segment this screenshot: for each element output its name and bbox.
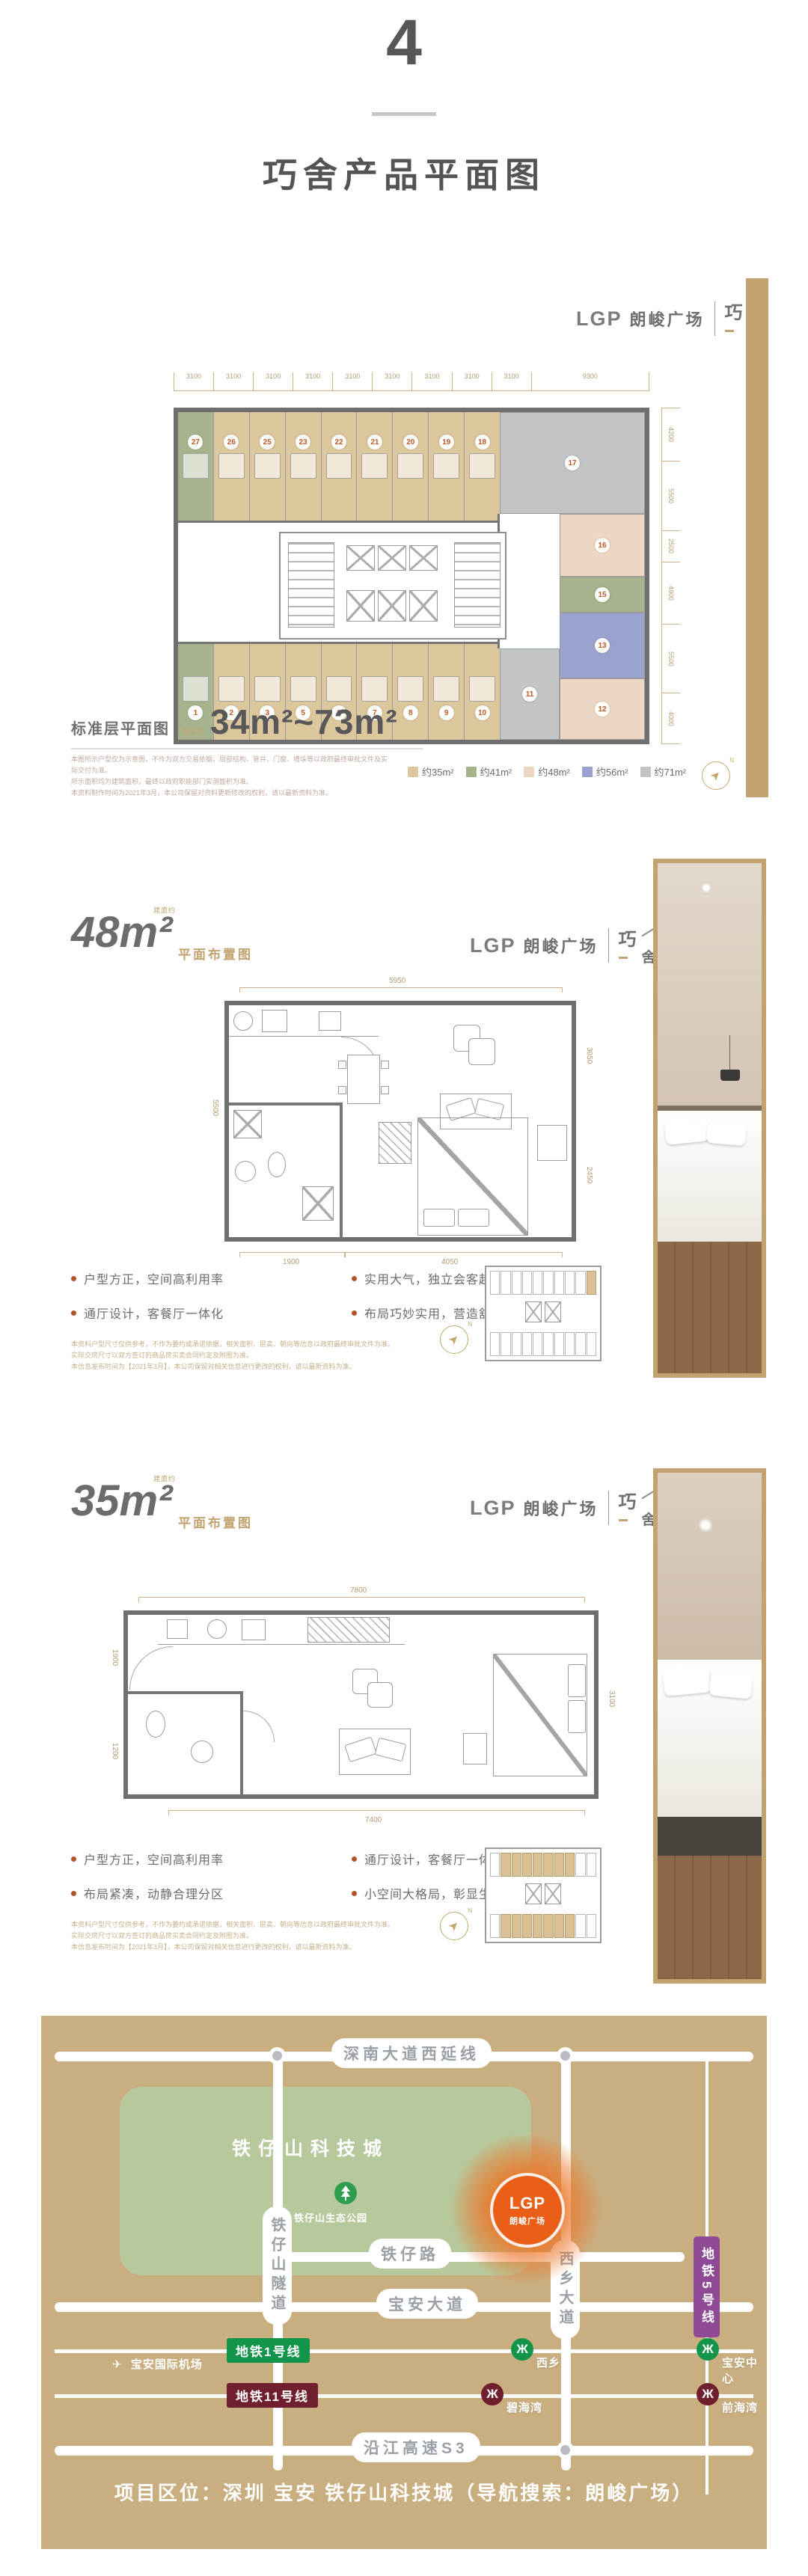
compass-icon: ➤ N [440,1325,468,1354]
unit48-disclaimer: 本资料户型尺寸仅供参考，不作为要约或承诺依据，相关面积、层高、朝向等信息以政府最… [71,1339,415,1373]
legend-swatch [524,767,534,777]
wall-lamp-glow [698,1518,713,1533]
unit35-area: 35m² [71,1479,172,1523]
bathroom-block [218,453,245,479]
brand-name: 朗峻广场 [630,307,705,331]
headboard [658,1105,762,1111]
brand-lockup: LGP 朗峻广场 巧 舍 [470,1488,658,1527]
dim-label: 5500 [662,461,680,530]
plan1-caption: 标准层平面图 建面约 34m²~73m² [71,702,398,742]
north-label: N [468,1907,472,1914]
elevator-icon [409,545,438,571]
dim-label: 3100 [332,372,372,390]
inner-wall [340,1103,343,1239]
locator-cell [533,1853,542,1877]
metro-station-name: 前海湾 [722,2399,758,2415]
sink-icon [319,1011,341,1031]
locator-cell [554,1853,564,1877]
tech-city-label: 铁仔山科技城 [232,2134,389,2161]
locator-cell [587,1914,596,1938]
qiaoshe-char1: 巧 [725,298,743,324]
dim-label: 3100 [607,1690,616,1707]
sink-icon [167,1619,188,1639]
unit-number: 19 [439,435,454,450]
feature-item: 户型方正，空间高利用率 [71,1841,352,1876]
locator-cell [554,1914,564,1938]
locator-cell [501,1271,510,1295]
feature-text: 布局紧凑，动静合理分区 [84,1884,224,1902]
floor-plan-48 [224,1001,576,1242]
locator-cell [490,1332,500,1356]
unit35-locator [485,1847,602,1943]
bullet-dot-icon [352,1891,357,1896]
locator-cell [554,1271,564,1295]
locator-cell [565,1332,575,1356]
pillow [708,1671,753,1699]
metro-station-icon: Ж [511,2338,533,2361]
dim-label: 3100 [452,372,492,390]
bathroom-block [183,453,209,479]
feature-item: 户型方正，空间高利用率 [71,1261,352,1295]
legend-label: 约71m² [655,764,687,779]
locator-cell [512,1271,521,1295]
qiaoshe-mark: 巧 舍 [619,926,658,965]
locator-cell [522,1853,532,1877]
elevator-icon [409,590,438,622]
tree-trunk [345,2197,346,2201]
north-arrow-icon: ➤ [445,1331,463,1349]
bathroom-block [254,676,281,702]
corridor-wall [178,521,500,523]
unit-number: 22 [331,435,346,450]
feature-item: 布局紧凑，动静合理分区 [71,1876,352,1910]
chair [338,1086,346,1094]
area-prefix: 建面约 [182,725,204,736]
unit35-sublabel: 平面布置图 [178,1512,253,1531]
road-label-tiezai: 铁仔路 [369,2239,451,2269]
wardrobe-icon [307,1617,390,1643]
gold-dash-icon [619,1519,628,1521]
dim-label: 5500 [211,1100,219,1116]
metro-station-name: 西乡 [536,2355,560,2370]
road-label-baoan: 宝安大道 [376,2289,478,2319]
closet-icon [302,1186,334,1221]
locator-cell [501,1853,510,1877]
chair [381,1086,389,1094]
project-logo: LGP [509,2194,545,2213]
dim-line [344,1252,563,1257]
unit-cell: 18 [465,412,500,521]
locator-cell [575,1332,585,1356]
unit-cell: 20 [393,412,429,521]
locator-cell [587,1332,596,1356]
unit-cell: 10 [465,644,500,740]
inner-wall [128,1691,242,1694]
locator-cell [490,1914,500,1938]
metro1-label: 地铁1号线 [227,2338,310,2363]
locator-cell [543,1853,553,1877]
pillow [423,1209,455,1227]
ceiling-light [701,883,711,893]
feature-item: 通厅设计，客餐厅一体化 [71,1295,352,1330]
pillow [568,1664,586,1697]
brand-lockup: LGP 朗峻广场 巧 舍 [576,299,764,338]
bathroom-block [433,676,459,702]
disclaimer-line: 本信息发布时间为【2021年3月】，本公司保留对相关信息进行更改的权利，请以最新… [71,1942,415,1953]
locator-cell [501,1332,510,1356]
bathroom-block [254,453,281,479]
locator-cell [587,1853,596,1877]
unit-cell: 13 [560,613,645,678]
chair [381,1061,389,1069]
locator-cell [565,1853,575,1877]
bullet-dot-icon [71,1276,76,1281]
park-label: 铁仔山生态公园 [294,2210,367,2224]
metro-station-icon: Ж [697,2383,719,2405]
stove-icon [242,1619,266,1640]
brand-divider [608,1491,609,1525]
dim-line [168,1810,585,1815]
pillow [458,1209,489,1227]
unit-number: 17 [565,456,580,470]
entry-door-arc [129,1646,173,1690]
unit-number: 13 [595,638,610,653]
unit-number: 15 [595,587,610,602]
bullet-dot-icon [71,1891,76,1896]
disclaimer-line: 本信息发布时间为【2021年3月】，本公司保留对相关信息进行更改的权利，请以最新… [71,1361,415,1373]
bullet-dot-icon [71,1856,76,1862]
gold-side-strip [746,278,768,797]
locator-core-icon [545,1301,561,1322]
stairs-icon [454,542,501,628]
locator-cell [522,1332,532,1356]
compass-icon: ➤ N [702,761,730,790]
unit-number: 25 [260,435,275,450]
lamp-cord [729,1035,730,1070]
disclaimer-line: 本资料制作时间为2021年3月，本公司保留对资料更新修改的权利，请以最新资料为准… [71,788,393,799]
unit-number: 10 [475,705,490,720]
brand-lockup: LGP 朗峻广场 巧 舍 [470,926,658,965]
metro11-line [55,2394,753,2398]
wood-floor [658,1856,762,1979]
dim-label: 3050 [585,1047,593,1064]
caption-underline [71,748,423,749]
dim-label: 3100 [174,372,213,390]
project-location-footer: 项目区位：深圳 宝安 铁仔山科技城（导航搜索：朗峻广场） [41,2478,767,2506]
north-arrow-icon: ➤ [707,767,725,785]
legend-label: 约48m² [538,764,570,779]
locator-cell [543,1914,553,1938]
plan1-top-row: 272625232221201918 [178,412,500,521]
unit48-area-prefix: 建面约 [153,905,176,915]
unit-number: 9 [439,705,454,720]
unit-number: 16 [595,538,610,553]
bullet-dot-icon [352,1310,357,1316]
qiaoshe-char1: 巧 [619,924,637,951]
bathroom-block [218,676,245,702]
stove-icon [262,1010,287,1032]
brand-name: 朗峻广场 [524,933,599,957]
dining-table [347,1055,380,1104]
dim-label: 7800 [350,1586,367,1595]
disclaimer-line: 实际交房尺寸以双方签订的商品房买卖合同约定及附图为准。 [71,1931,415,1942]
unit-cell: 12 [560,678,645,740]
legend-label: 约41m² [480,764,512,779]
intersection-icon [269,2047,286,2064]
legend-swatch [466,767,477,777]
compass-icon: ➤ N [440,1912,468,1940]
elevator-core [279,532,506,640]
unit-cell: 22 [322,412,358,521]
plan1-right-dims: 420055002500490055004000 [661,408,680,744]
area-range: 34m²~73m² [210,702,398,742]
photo-wall [658,1473,762,1660]
lgp-logo: LGP [470,934,516,957]
bathroom-block [183,676,209,702]
locator-cell [512,1332,521,1356]
locator-cell [565,1271,575,1295]
dim-label: 3100 [213,372,253,390]
park-tree-icon [334,2182,357,2204]
dim-label: 4900 [662,562,680,624]
bedroom-photo-35 [653,1468,766,1984]
locator-bottom-band [490,1914,596,1938]
disclaimer-line: 所示面积均为建筑面积，最终以政府职能部门实测面积为准。 [71,776,393,788]
wood-floor [658,1242,762,1373]
north-label: N [468,1321,472,1328]
locator-cell [565,1914,575,1938]
metro5-label: 地铁5号线 [694,2236,720,2337]
dim-label: 3100 [492,372,531,390]
section-number: 4 [0,10,808,75]
elevator-icon [378,545,406,571]
bathroom-block [361,676,388,702]
chair [338,1061,346,1069]
project-marker: LGP 朗峻广场 [490,2173,565,2248]
bed-bench [658,1817,762,1856]
dim-label: 3100 [372,372,411,390]
floor-plan-35 [123,1610,599,1799]
dim-label: 3100 [293,372,332,390]
unit-number: 20 [403,435,418,450]
pendant-lamp [720,1070,740,1081]
feature-text: 实用大气，独立会客起居 [364,1269,504,1287]
legend-label: 约35m² [422,764,454,779]
photo-wall [658,863,762,1110]
locator-cell [522,1914,532,1938]
unit-cell: 16 [560,514,645,577]
bathroom-block [469,676,495,702]
dim-label: 3100 [411,372,451,390]
qiaoshe-mark: 巧 舍 [619,1488,658,1527]
locator-cell [522,1271,532,1295]
intersection-icon [557,2047,574,2064]
airport-name: 宝安国际机场 [131,2358,203,2371]
basin-icon [191,1741,213,1763]
toilet-icon [268,1152,286,1177]
legend-item: 约41m² [466,764,512,779]
bathroom-block [290,676,316,702]
brand-divider [714,301,715,336]
qiaoshe-char1: 巧 [619,1487,637,1513]
nightstand [463,1733,487,1764]
toilet-icon [146,1711,165,1738]
unit-17: 17 [500,412,645,514]
bullet-dot-icon [352,1276,357,1281]
unit-cell: 9 [429,644,465,740]
inner-wall [240,1691,243,1796]
locator-cell [490,1853,500,1877]
bathroom-block [326,676,352,702]
unit48-features: 户型方正，空间高利用率实用大气，独立会客起居通厅设计，客餐厅一体化布局巧妙实用，… [71,1261,530,1330]
road-label-yanjiang: 沿江高速S3 [352,2432,480,2462]
pillow [664,1118,710,1145]
locator-core-icon [545,1883,561,1904]
dim-label: 1200 [111,1743,119,1759]
legend-swatch [640,767,651,777]
dim-label: 2500 [662,530,680,562]
plan1-label: 标准层平面图 [71,717,170,738]
disclaimer-line: 本图所示户型仅为示意图，不作为双方交易依据，局部结构、管井、门窗、墙垛等以政府最… [71,754,393,776]
legend-item: 约35m² [408,764,454,779]
dim-label: 2450 [585,1167,593,1183]
locator-cell [501,1914,510,1938]
gold-dash-icon [725,330,734,332]
locator-cell [490,1271,500,1295]
legend-swatch [582,767,593,777]
dim-label: 5950 [389,977,405,985]
intersection-icon [557,2441,574,2459]
nightstand [537,1125,567,1161]
dim-label: 3100 [253,372,293,390]
feature-text: 户型方正，空间高利用率 [84,1850,224,1868]
legend-item: 约56m² [582,764,628,779]
dim-label: 1900 [111,1649,119,1666]
unit-cell: 25 [250,412,286,521]
legend-item: 约71m² [640,764,687,779]
bathroom-block [469,453,495,479]
locator-core-icon [525,1883,542,1904]
locator-cell [512,1914,521,1938]
locator-top-band [490,1271,596,1295]
locator-cell [533,1332,542,1356]
gold-dash-icon [619,957,628,959]
bullet-dot-icon [71,1310,76,1316]
unit48-locator [485,1266,602,1361]
feature-text: 通厅设计，客餐厅一体化 [364,1850,504,1868]
pillow [663,1666,711,1696]
bathroom-block [361,453,388,479]
corridor-wall [178,642,500,644]
metro-station-name: 碧海湾 [506,2399,542,2415]
unit35-disclaimer: 本资料户型尺寸仅供参考，不作为要约或承诺依据，相关面积、层高、朝向等信息以政府最… [71,1919,415,1953]
unit-cell: 26 [214,412,250,521]
bathroom-block [433,453,459,479]
bathroom-block [326,453,352,479]
metro-station-name: 宝安中心 [722,2355,767,2386]
unit35-features: 户型方正，空间高利用率通厅设计，客餐厅一体化布局紧凑，动静合理分区小空间大格局，… [71,1841,530,1910]
basin-icon [235,1161,256,1182]
project-name: 朗峻广场 [509,2215,545,2227]
plan1-disclaimer: 本图所示户型仅为示意图，不作为双方交易依据，局部结构、管井、门窗、墙垛等以政府最… [71,754,393,799]
washer-icon [233,1011,253,1031]
locator-cell [575,1853,585,1877]
unit-number: 8 [403,705,418,720]
lgp-logo: LGP [470,1497,516,1520]
bathroom-block [397,676,423,702]
locator-cell [512,1853,521,1877]
metro11-label: 地铁11号线 [227,2383,318,2408]
locator-cell [575,1271,585,1295]
locator-core-icon [525,1301,542,1322]
pillow [568,1700,586,1733]
shower-icon [233,1110,262,1138]
locator-bottom-band [490,1332,596,1356]
brand-divider [608,928,609,963]
dim-line [239,1252,346,1257]
feature-text: 通厅设计，客餐厅一体化 [84,1304,224,1322]
wall-art [367,1682,393,1708]
unit-number: 12 [595,702,610,717]
disclaimer-line: 实际交房尺寸以双方签订的商品房买卖合同约定及附图为准。 [71,1350,415,1361]
dim-line [138,1597,585,1602]
disclaimer-line: 本资料户型尺寸仅供参考，不作为要约或承诺依据，相关面积、层高、朝向等信息以政府最… [71,1339,415,1350]
unit48-area: 48m² [71,911,172,954]
inner-wall [229,1103,341,1105]
bathroom-block [397,453,423,479]
wardrobe-icon [379,1122,411,1164]
metro-station-icon: Ж [697,2338,719,2361]
plan1-top-dims: 3100310031003100310031003100310031009300 [174,372,649,391]
dim-label: 4000 [662,693,680,744]
unit48-sublabel: 平面布置图 [178,944,253,963]
plane-icon: ✈ [112,2358,123,2371]
dim-label: 4200 [662,408,680,461]
elevator-icon [346,590,375,622]
road-label-tunnel: 铁仔山隧道 [263,2207,292,2325]
locator-top-band [490,1853,596,1877]
bedroom-photo-48 [653,859,766,1378]
location-map: 铁仔山科技城 深南大道西延线 铁仔路 宝安大道 沿江高速S3 铁仔山隧道 西乡大… [41,2016,767,2549]
unit-number: 27 [188,435,203,450]
wall-art [468,1038,495,1065]
legend-item: 约48m² [524,764,570,779]
bullet-dot-icon [352,1856,357,1862]
locator-cell [533,1914,542,1938]
unit-cell: 27 [178,412,214,521]
north-arrow-icon: ➤ [445,1917,463,1935]
locator-cell [543,1332,553,1356]
locator-cell [533,1271,542,1295]
legend-label: 约56m² [596,764,628,779]
unit-number: 21 [367,435,382,450]
airport-label: ✈ 宝安国际机场 [112,2356,203,2372]
unit-cell: 23 [286,412,322,521]
locator-cell [543,1271,553,1295]
door-arc [243,1711,275,1742]
north-label: N [729,757,734,764]
unit-number: 26 [224,435,239,450]
page-title: 巧舍产品平面图 [0,148,808,197]
unit-number: 23 [296,435,310,450]
stairs-icon [288,542,334,628]
title-divider [372,112,436,116]
elevator-icon [378,590,406,622]
unit-cell: 19 [429,412,465,521]
locator-cell [587,1271,596,1295]
dim-label: 9300 [531,372,649,390]
locator-cell [575,1914,585,1938]
